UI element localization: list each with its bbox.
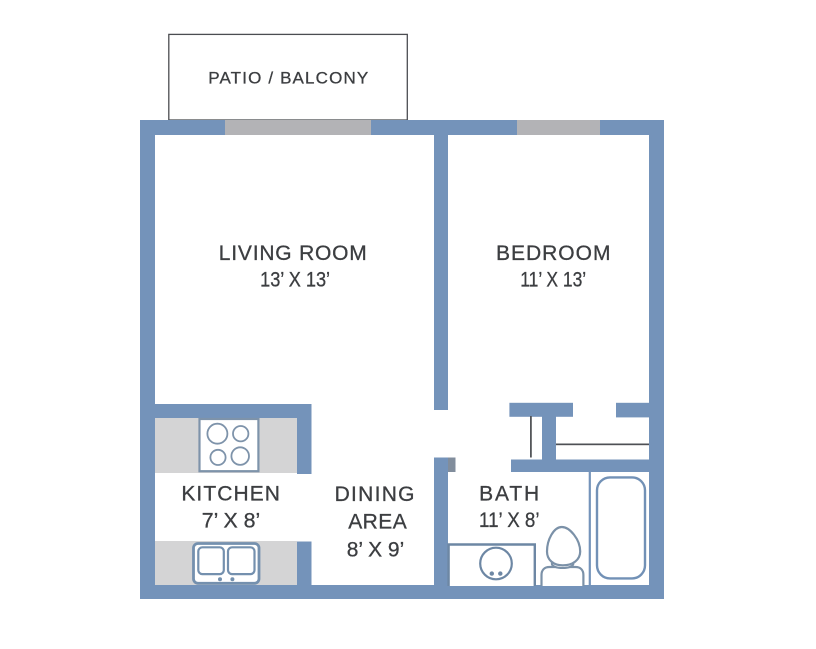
svg-text:PATIO / BALCONY: PATIO / BALCONY (208, 69, 369, 88)
svg-text:AREA: AREA (348, 510, 407, 533)
svg-text:11’ X 13’: 11’ X 13’ (520, 269, 586, 292)
svg-text:11’ X 8’: 11’ X 8’ (479, 509, 540, 532)
svg-text:BEDROOM: BEDROOM (496, 242, 612, 265)
svg-text:KITCHEN: KITCHEN (181, 482, 281, 505)
svg-text:BATH: BATH (479, 482, 541, 505)
svg-text:13’ X 13’: 13’ X 13’ (260, 268, 330, 291)
svg-text:8’ X 9’: 8’ X 9’ (347, 539, 405, 562)
svg-text:DINING: DINING (335, 483, 416, 506)
svg-text:LIVING ROOM: LIVING ROOM (219, 242, 368, 265)
svg-text:7’ X 8’: 7’ X 8’ (202, 509, 261, 532)
